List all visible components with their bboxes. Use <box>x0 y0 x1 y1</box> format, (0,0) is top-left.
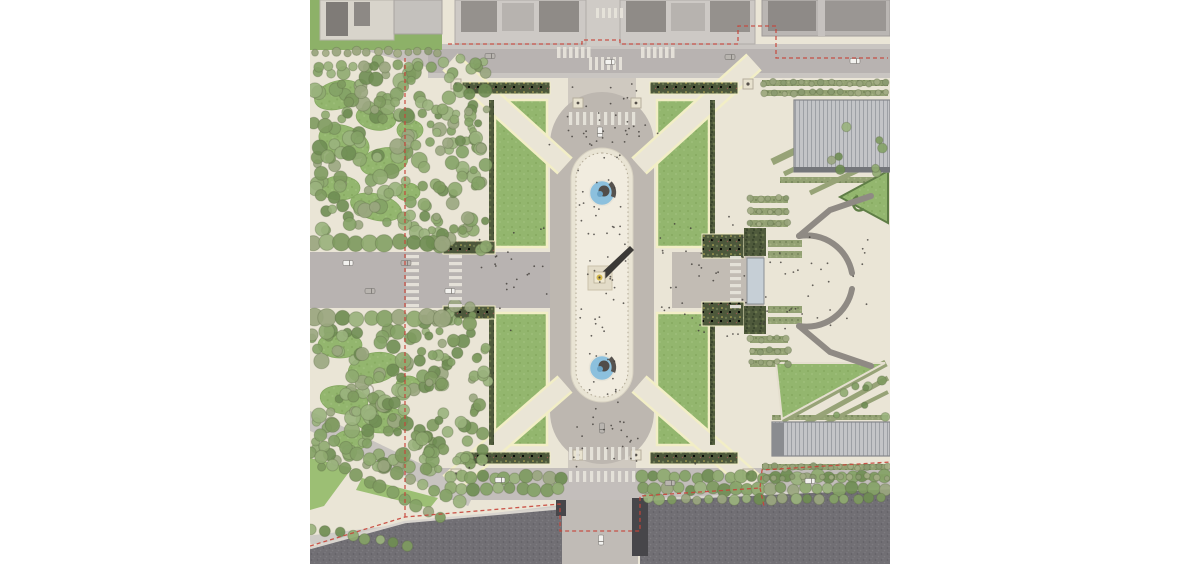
gate-bed-north <box>744 228 766 256</box>
bridge <box>562 500 638 564</box>
north-gallery-building <box>794 100 890 172</box>
entrance-gate <box>747 258 764 304</box>
south-fountain <box>590 356 615 381</box>
bridge-abutment-west <box>556 500 566 516</box>
gate-bed-south <box>744 306 766 334</box>
site-plan-graphic <box>310 0 890 564</box>
rue-north <box>586 0 620 46</box>
plan-canvas <box>0 0 1200 564</box>
site-plan-map[interactable] <box>310 0 890 564</box>
south-gallery-building <box>772 422 890 456</box>
north-fountain <box>590 181 615 206</box>
